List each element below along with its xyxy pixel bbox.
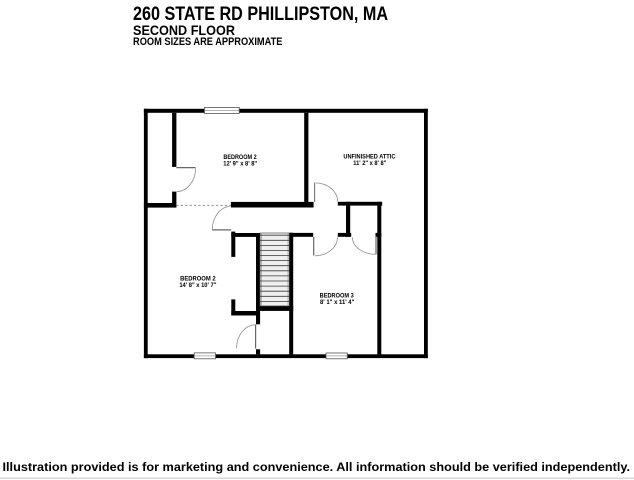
svg-text:ROOM SIZES ARE APPROXIMATE: ROOM SIZES ARE APPROXIMATE [133, 36, 283, 48]
svg-text:8' 1" x 11' 4": 8' 1" x 11' 4" [320, 299, 354, 306]
svg-text:11' 2" x 8' 8": 11' 2" x 8' 8" [353, 160, 386, 167]
svg-text:14' 8" x 10' 7": 14' 8" x 10' 7" [179, 282, 216, 289]
svg-text:Illustration provided is for m: Illustration provided is for marketing a… [3, 460, 631, 474]
svg-text:12' 9" x 8' 8": 12' 9" x 8' 8" [223, 161, 257, 168]
